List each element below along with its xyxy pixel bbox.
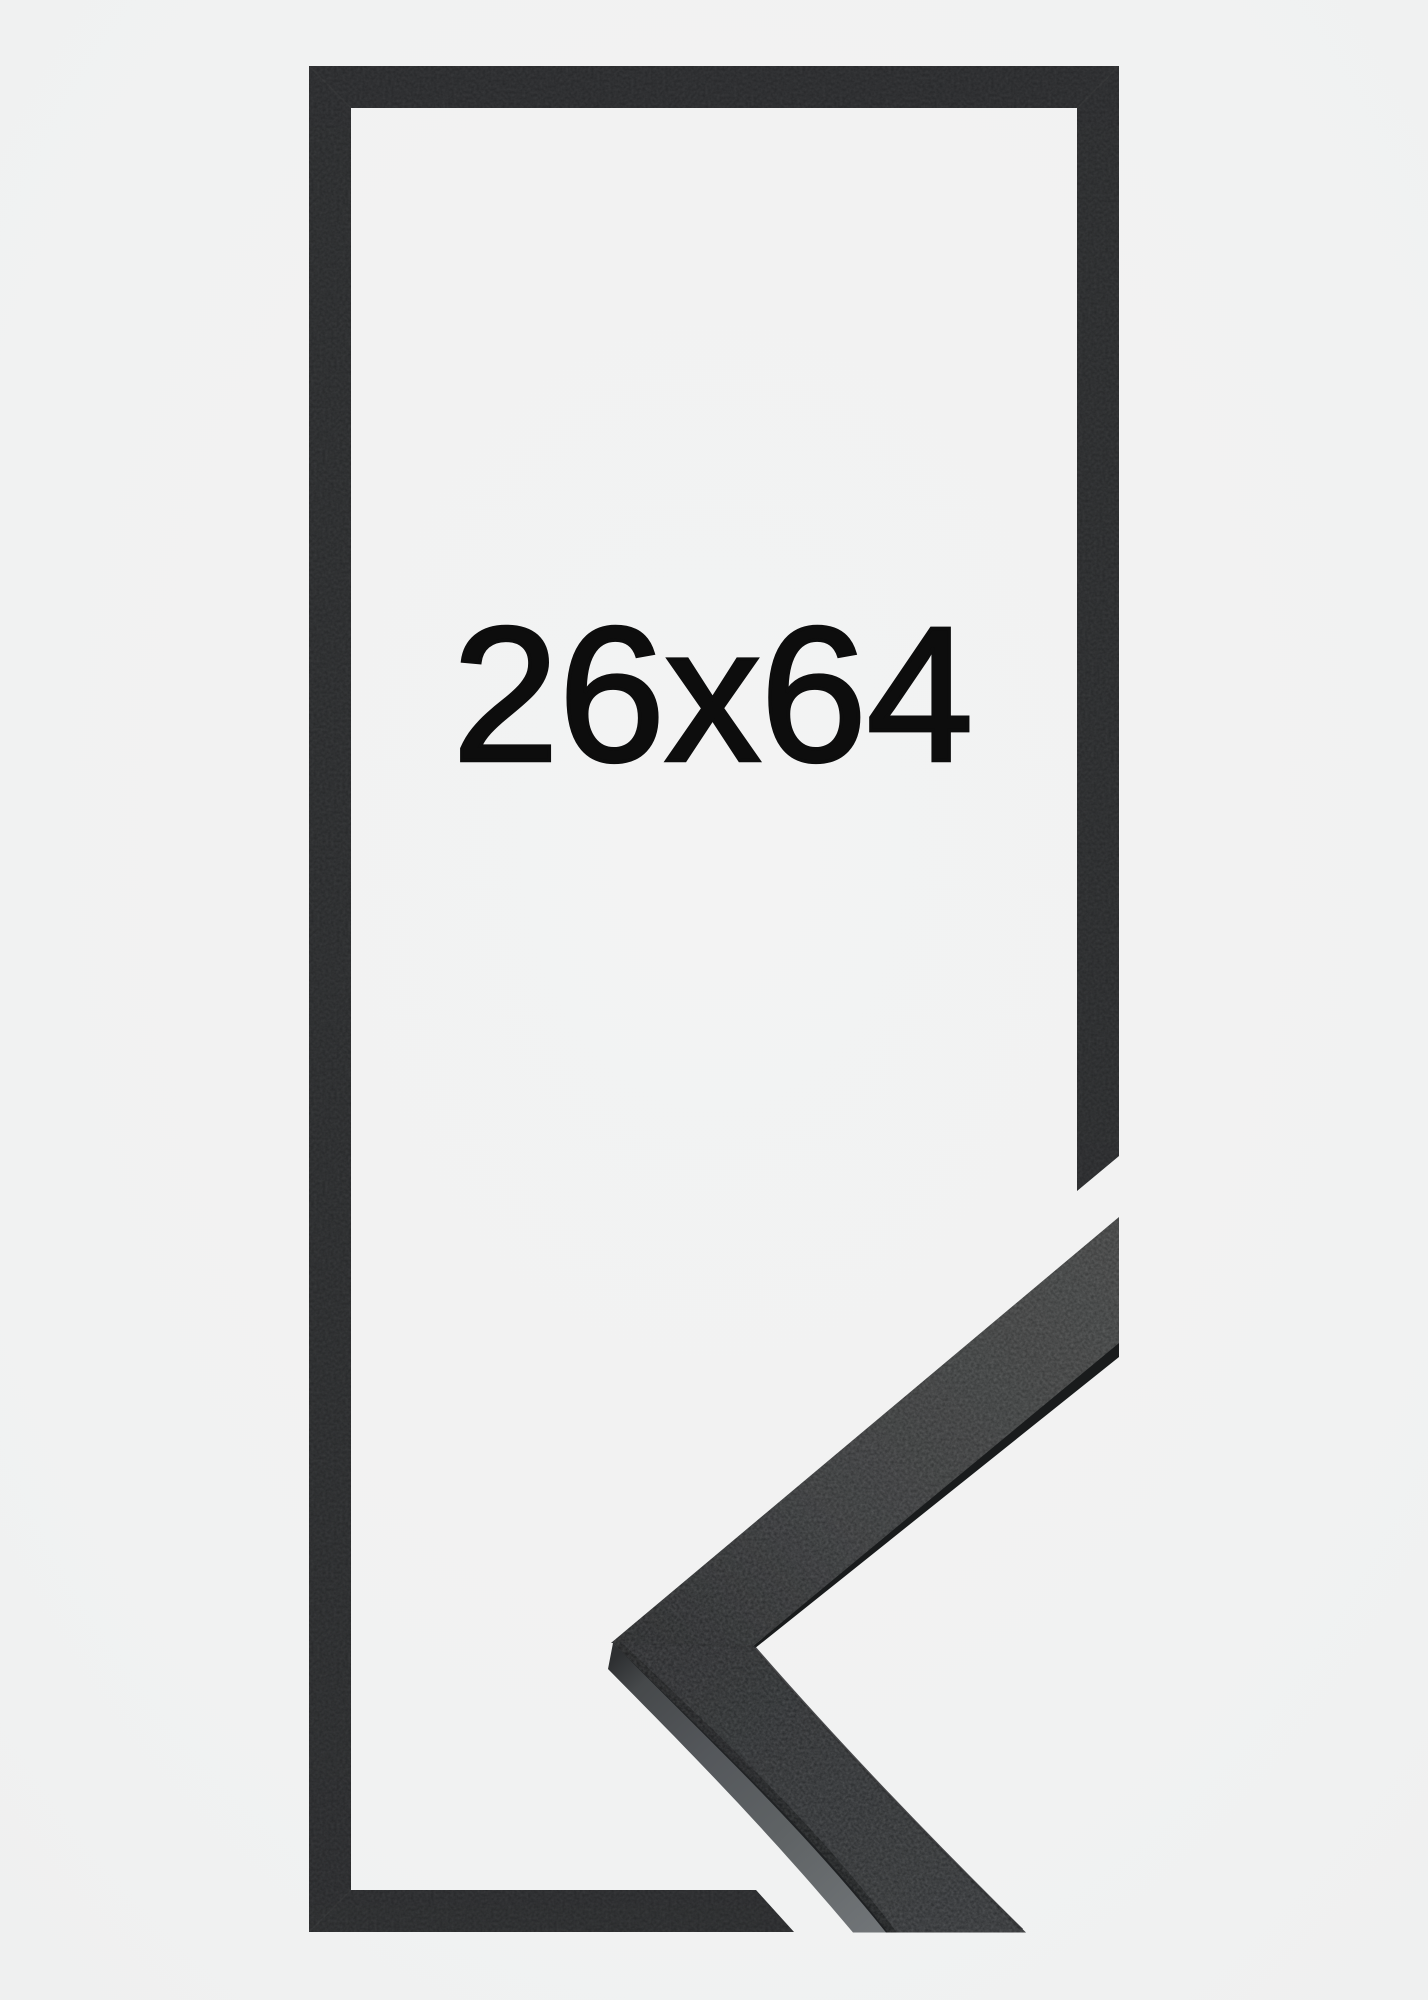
svg-text:26x64: 26x64 [452, 587, 973, 802]
